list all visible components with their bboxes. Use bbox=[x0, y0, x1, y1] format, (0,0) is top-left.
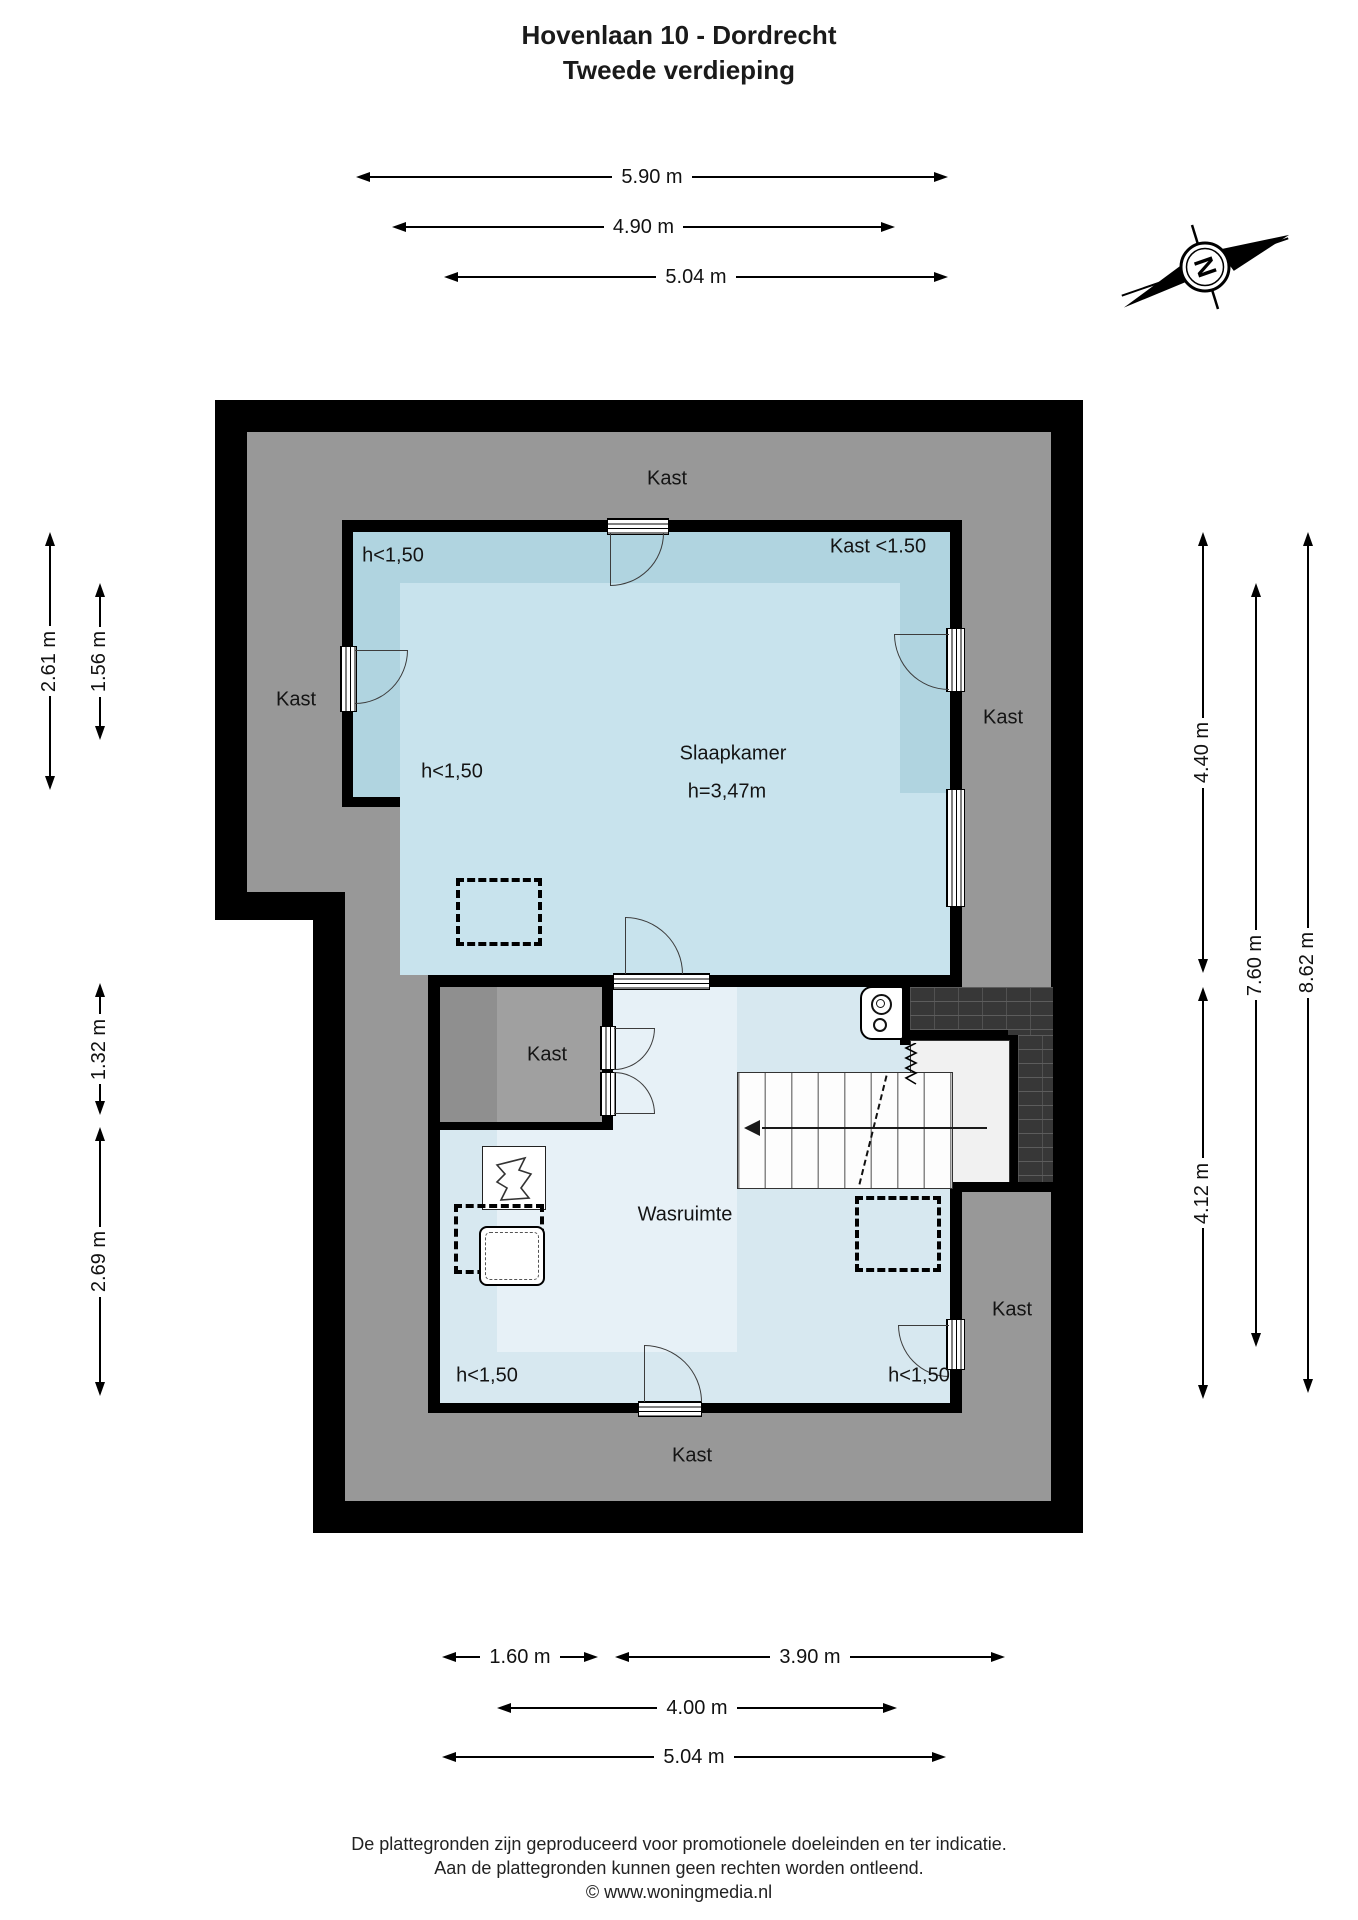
label-low-height: h<1,50 bbox=[421, 761, 483, 784]
roof-tiles bbox=[1018, 1035, 1053, 1182]
door-threshold bbox=[613, 973, 710, 990]
dim-bottom-1: 1.60 m bbox=[442, 1647, 598, 1667]
label-kast-bottom: Kast bbox=[672, 1445, 712, 1468]
label-kast-middle: Kast bbox=[527, 1044, 567, 1067]
stairs-cut-zigzag-icon bbox=[903, 1043, 919, 1085]
copyright: © www.woningmedia.nl bbox=[0, 1880, 1358, 1904]
dim-top-3: 5.04 m bbox=[444, 267, 948, 287]
label-kast-150: Kast <1.50 bbox=[830, 536, 926, 559]
wall-segment bbox=[950, 1182, 1053, 1192]
dim-left-2: 1.56 m bbox=[90, 583, 110, 740]
label-room-wasruimte: Wasruimte bbox=[638, 1204, 733, 1227]
dim-top-2: 4.90 m bbox=[392, 217, 895, 237]
label-low-height: h<1,50 bbox=[362, 545, 424, 568]
dim-top-1: 5.90 m bbox=[356, 167, 948, 187]
dim-right-2: 7.60 m bbox=[1246, 583, 1266, 1347]
bedroom-full-height-area bbox=[900, 793, 950, 975]
label-low-height: h<1,50 bbox=[456, 1365, 518, 1388]
stairs-direction-arrow-icon bbox=[744, 1120, 760, 1136]
dim-right-4: 4.12 m bbox=[1193, 987, 1213, 1399]
stairs-direction-line bbox=[762, 1127, 987, 1129]
disclaimer: De plattegronden zijn geproduceerd voor … bbox=[0, 1832, 1358, 1904]
label-kast-right-lower: Kast bbox=[992, 1299, 1032, 1322]
dim-bottom-4: 5.04 m bbox=[442, 1747, 946, 1767]
page-title: Hovenlaan 10 - Dordrecht Tweede verdiepi… bbox=[0, 18, 1358, 88]
dim-right-1: 4.40 m bbox=[1193, 532, 1213, 973]
skylight-dashed-box bbox=[456, 878, 542, 946]
label-ceiling-height: h=3,47m bbox=[688, 781, 766, 804]
boiler-icon bbox=[860, 986, 904, 1040]
dim-right-3: 8.62 m bbox=[1298, 532, 1318, 1393]
label-kast-left: Kast bbox=[276, 689, 316, 712]
skylight-dashed-box bbox=[855, 1196, 941, 1272]
label-kast-right-upper: Kast bbox=[983, 707, 1023, 730]
dim-left-4: 2.69 m bbox=[90, 1127, 110, 1396]
label-kast-top: Kast bbox=[647, 468, 687, 491]
title-address: Hovenlaan 10 - Dordrecht bbox=[0, 18, 1358, 53]
dim-left-3: 1.32 m bbox=[90, 983, 110, 1115]
window bbox=[946, 789, 965, 907]
label-low-height: h<1,50 bbox=[888, 1365, 950, 1388]
disclaimer-line2: Aan de plattegronden kunnen geen rechten… bbox=[0, 1856, 1358, 1880]
wall-segment bbox=[910, 1030, 1008, 1040]
stairs bbox=[737, 1072, 953, 1189]
disclaimer-line1: De plattegronden zijn geproduceerd voor … bbox=[0, 1832, 1358, 1856]
vent-unit-icon bbox=[482, 1146, 546, 1210]
door-threshold bbox=[638, 1401, 702, 1417]
dim-bottom-3: 4.00 m bbox=[497, 1698, 897, 1718]
dim-bottom-2: 3.90 m bbox=[615, 1647, 1005, 1667]
compass-north-icon: N bbox=[1105, 205, 1305, 330]
label-room-slaapkamer: Slaapkamer bbox=[680, 743, 787, 766]
dim-left-1: 2.61 m bbox=[40, 532, 60, 790]
title-floor: Tweede verdieping bbox=[0, 53, 1358, 88]
washing-machine-icon bbox=[479, 1226, 545, 1286]
floor-plan-page: Hovenlaan 10 - Dordrecht Tweede verdiepi… bbox=[0, 0, 1358, 1920]
closet-room-low-part bbox=[440, 987, 497, 1122]
roof-tiles bbox=[910, 987, 1053, 1035]
